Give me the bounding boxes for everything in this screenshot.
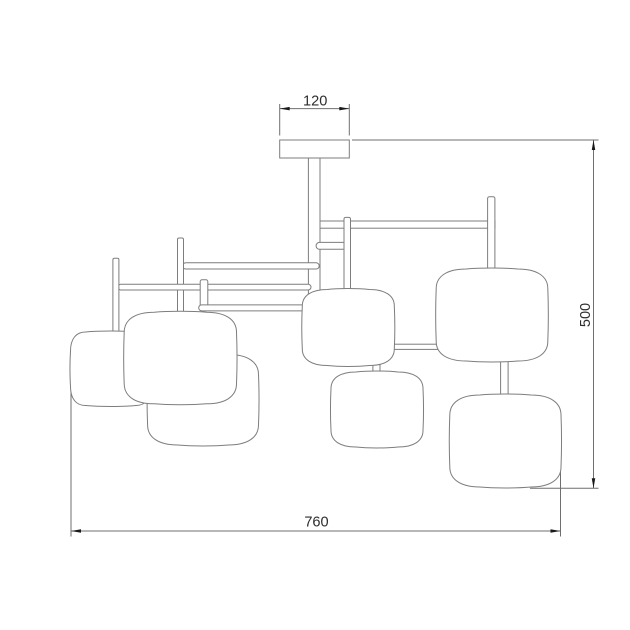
svg-text:760: 760 bbox=[304, 515, 328, 531]
svg-text:500: 500 bbox=[578, 303, 594, 327]
svg-text:120: 120 bbox=[303, 94, 327, 110]
